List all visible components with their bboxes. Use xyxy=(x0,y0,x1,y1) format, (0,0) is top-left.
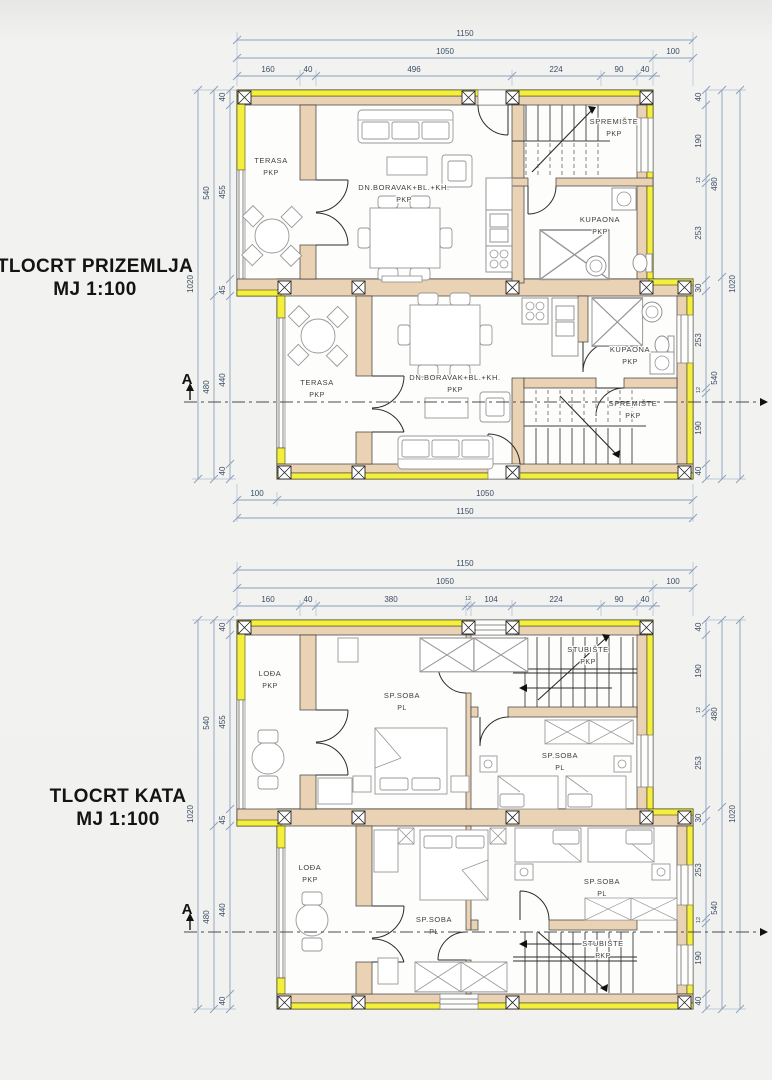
room-type-living: PKP xyxy=(396,197,412,204)
dim: 1020 xyxy=(728,805,737,823)
dim: 30 xyxy=(694,813,703,822)
dim: 380 xyxy=(384,595,398,604)
dim: 40 xyxy=(304,595,313,604)
dim: 190 xyxy=(694,421,703,435)
room-label-stubiste2: STUBIŠTE xyxy=(582,939,623,948)
plan1-building xyxy=(237,90,693,479)
dim: 12 xyxy=(696,387,702,393)
dim: 190 xyxy=(694,951,703,965)
dim: 12 xyxy=(696,917,702,923)
room-label-living2: DN.BORAVAK+BL.+KH. xyxy=(409,373,500,382)
dim: 104 xyxy=(484,595,498,604)
room-type-lodja: PKP xyxy=(262,683,278,690)
room-label-spremiste: SPREMIŠTE xyxy=(590,117,639,126)
room-type-stubiste2: PKP xyxy=(595,953,611,960)
dim: 1020 xyxy=(186,805,195,823)
dim: 540 xyxy=(710,901,719,915)
dim: 100 xyxy=(250,489,264,498)
dim-top-main: 1050 xyxy=(436,47,454,56)
dim: 1020 xyxy=(186,275,195,293)
room-label-spsoba3: SP.SOBA xyxy=(416,915,452,924)
dim: 30 xyxy=(694,283,703,292)
room-label-spremiste2: SPREMIŠTE xyxy=(609,399,658,408)
room-label-lodja2: LOĐA xyxy=(299,863,322,872)
dim: 496 xyxy=(407,65,421,74)
dim: 480 xyxy=(202,910,211,924)
dim: 12 xyxy=(465,596,471,602)
dim: 40 xyxy=(694,622,703,631)
room-type-stubiste1: PKP xyxy=(580,659,596,666)
dim: 1150 xyxy=(456,507,474,516)
dim: 540 xyxy=(202,186,211,200)
dim: 40 xyxy=(218,92,227,101)
room-label-lodja: LOĐA xyxy=(259,669,282,678)
dim: 40 xyxy=(694,996,703,1005)
room-type-kupaona: PKP xyxy=(592,229,608,236)
room-type-kupaona2: PKP xyxy=(622,359,638,366)
room-label-spsoba2: SP.SOBA xyxy=(542,751,578,760)
dim: 253 xyxy=(694,226,703,240)
dim: 455 xyxy=(218,185,227,199)
dim: 100 xyxy=(666,577,680,586)
plan1-scale: MJ 1:100 xyxy=(53,279,136,300)
dim: 40 xyxy=(694,466,703,475)
dim: 1150 xyxy=(456,559,474,568)
floor-plan-sheet: TERASA PKP DN.BORAVAK+BL.+KH. PKP SPREMI… xyxy=(0,0,772,1080)
room-label-kupaona: KUPAONA xyxy=(580,215,620,224)
dim: 12 xyxy=(696,707,702,713)
dim: 45 xyxy=(218,815,227,824)
dim: 45 xyxy=(218,285,227,294)
room-label-spsoba4: SP.SOBA xyxy=(584,877,620,886)
ground-floor-plan: TERASA PKP DN.BORAVAK+BL.+KH. PKP SPREMI… xyxy=(0,29,768,522)
dim: 540 xyxy=(202,716,211,730)
dim: 480 xyxy=(202,380,211,394)
room-label-stubiste1: STUBIŠTE xyxy=(567,645,608,654)
dim: 224 xyxy=(549,65,563,74)
room-label-terasa: TERASA xyxy=(254,156,288,165)
room-label-kupaona2: KUPAONA xyxy=(610,345,650,354)
plan2-title: TLOCRT KATA xyxy=(50,786,187,807)
room-label-spsoba1: SP.SOBA xyxy=(384,691,420,700)
dim: 40 xyxy=(218,622,227,631)
room-type-spremiste: PKP xyxy=(606,131,622,138)
upper-floor-plan: LOĐA PKP SP.SOBA PL STUBIŠTE PKP SP.SOBA… xyxy=(50,559,768,1013)
dim: 540 xyxy=(710,371,719,385)
dim-top-total: 1150 xyxy=(456,29,474,38)
dim: 480 xyxy=(710,177,719,191)
dim: 40 xyxy=(694,92,703,101)
dim: 190 xyxy=(694,664,703,678)
dim: 1020 xyxy=(728,275,737,293)
dim: 440 xyxy=(218,373,227,387)
dim: 12 xyxy=(696,177,702,183)
dim: 40 xyxy=(218,466,227,475)
room-type-terasa: PKP xyxy=(263,170,279,177)
dim: 440 xyxy=(218,903,227,917)
dim: 40 xyxy=(304,65,313,74)
dim: 90 xyxy=(615,595,624,604)
dim: 160 xyxy=(261,595,275,604)
dim: 1050 xyxy=(436,577,454,586)
dim: 253 xyxy=(694,756,703,770)
room-type-spsoba1: PL xyxy=(397,705,407,712)
dim: 224 xyxy=(549,595,563,604)
dim: 90 xyxy=(615,65,624,74)
dim: 40 xyxy=(218,996,227,1005)
room-type-lodja2: PKP xyxy=(302,877,318,884)
dim: 190 xyxy=(694,134,703,148)
dim: 160 xyxy=(261,65,275,74)
dim: 1050 xyxy=(476,489,494,498)
plan1-title: TLOCRT PRIZEMLJA xyxy=(0,256,193,277)
room-type-terasa2: PKP xyxy=(309,392,325,399)
dim: 40 xyxy=(641,65,650,74)
room-type-living2: PKP xyxy=(447,387,463,394)
room-label-living: DN.BORAVAK+BL.+KH. xyxy=(358,183,449,192)
room-type-spsoba4: PL xyxy=(597,891,607,898)
dim: 253 xyxy=(694,863,703,877)
plan2-scale: MJ 1:100 xyxy=(76,809,159,830)
dim-top-offset: 100 xyxy=(666,47,680,56)
room-type-spsoba2: PL xyxy=(555,765,565,772)
dim: 40 xyxy=(641,595,650,604)
room-label-terasa2: TERASA xyxy=(300,378,334,387)
floor-plan-drawing: TERASA PKP DN.BORAVAK+BL.+KH. PKP SPREMI… xyxy=(0,0,772,1080)
dim: 455 xyxy=(218,715,227,729)
room-type-spremiste2: PKP xyxy=(625,413,641,420)
dim: 253 xyxy=(694,333,703,347)
dim: 480 xyxy=(710,707,719,721)
